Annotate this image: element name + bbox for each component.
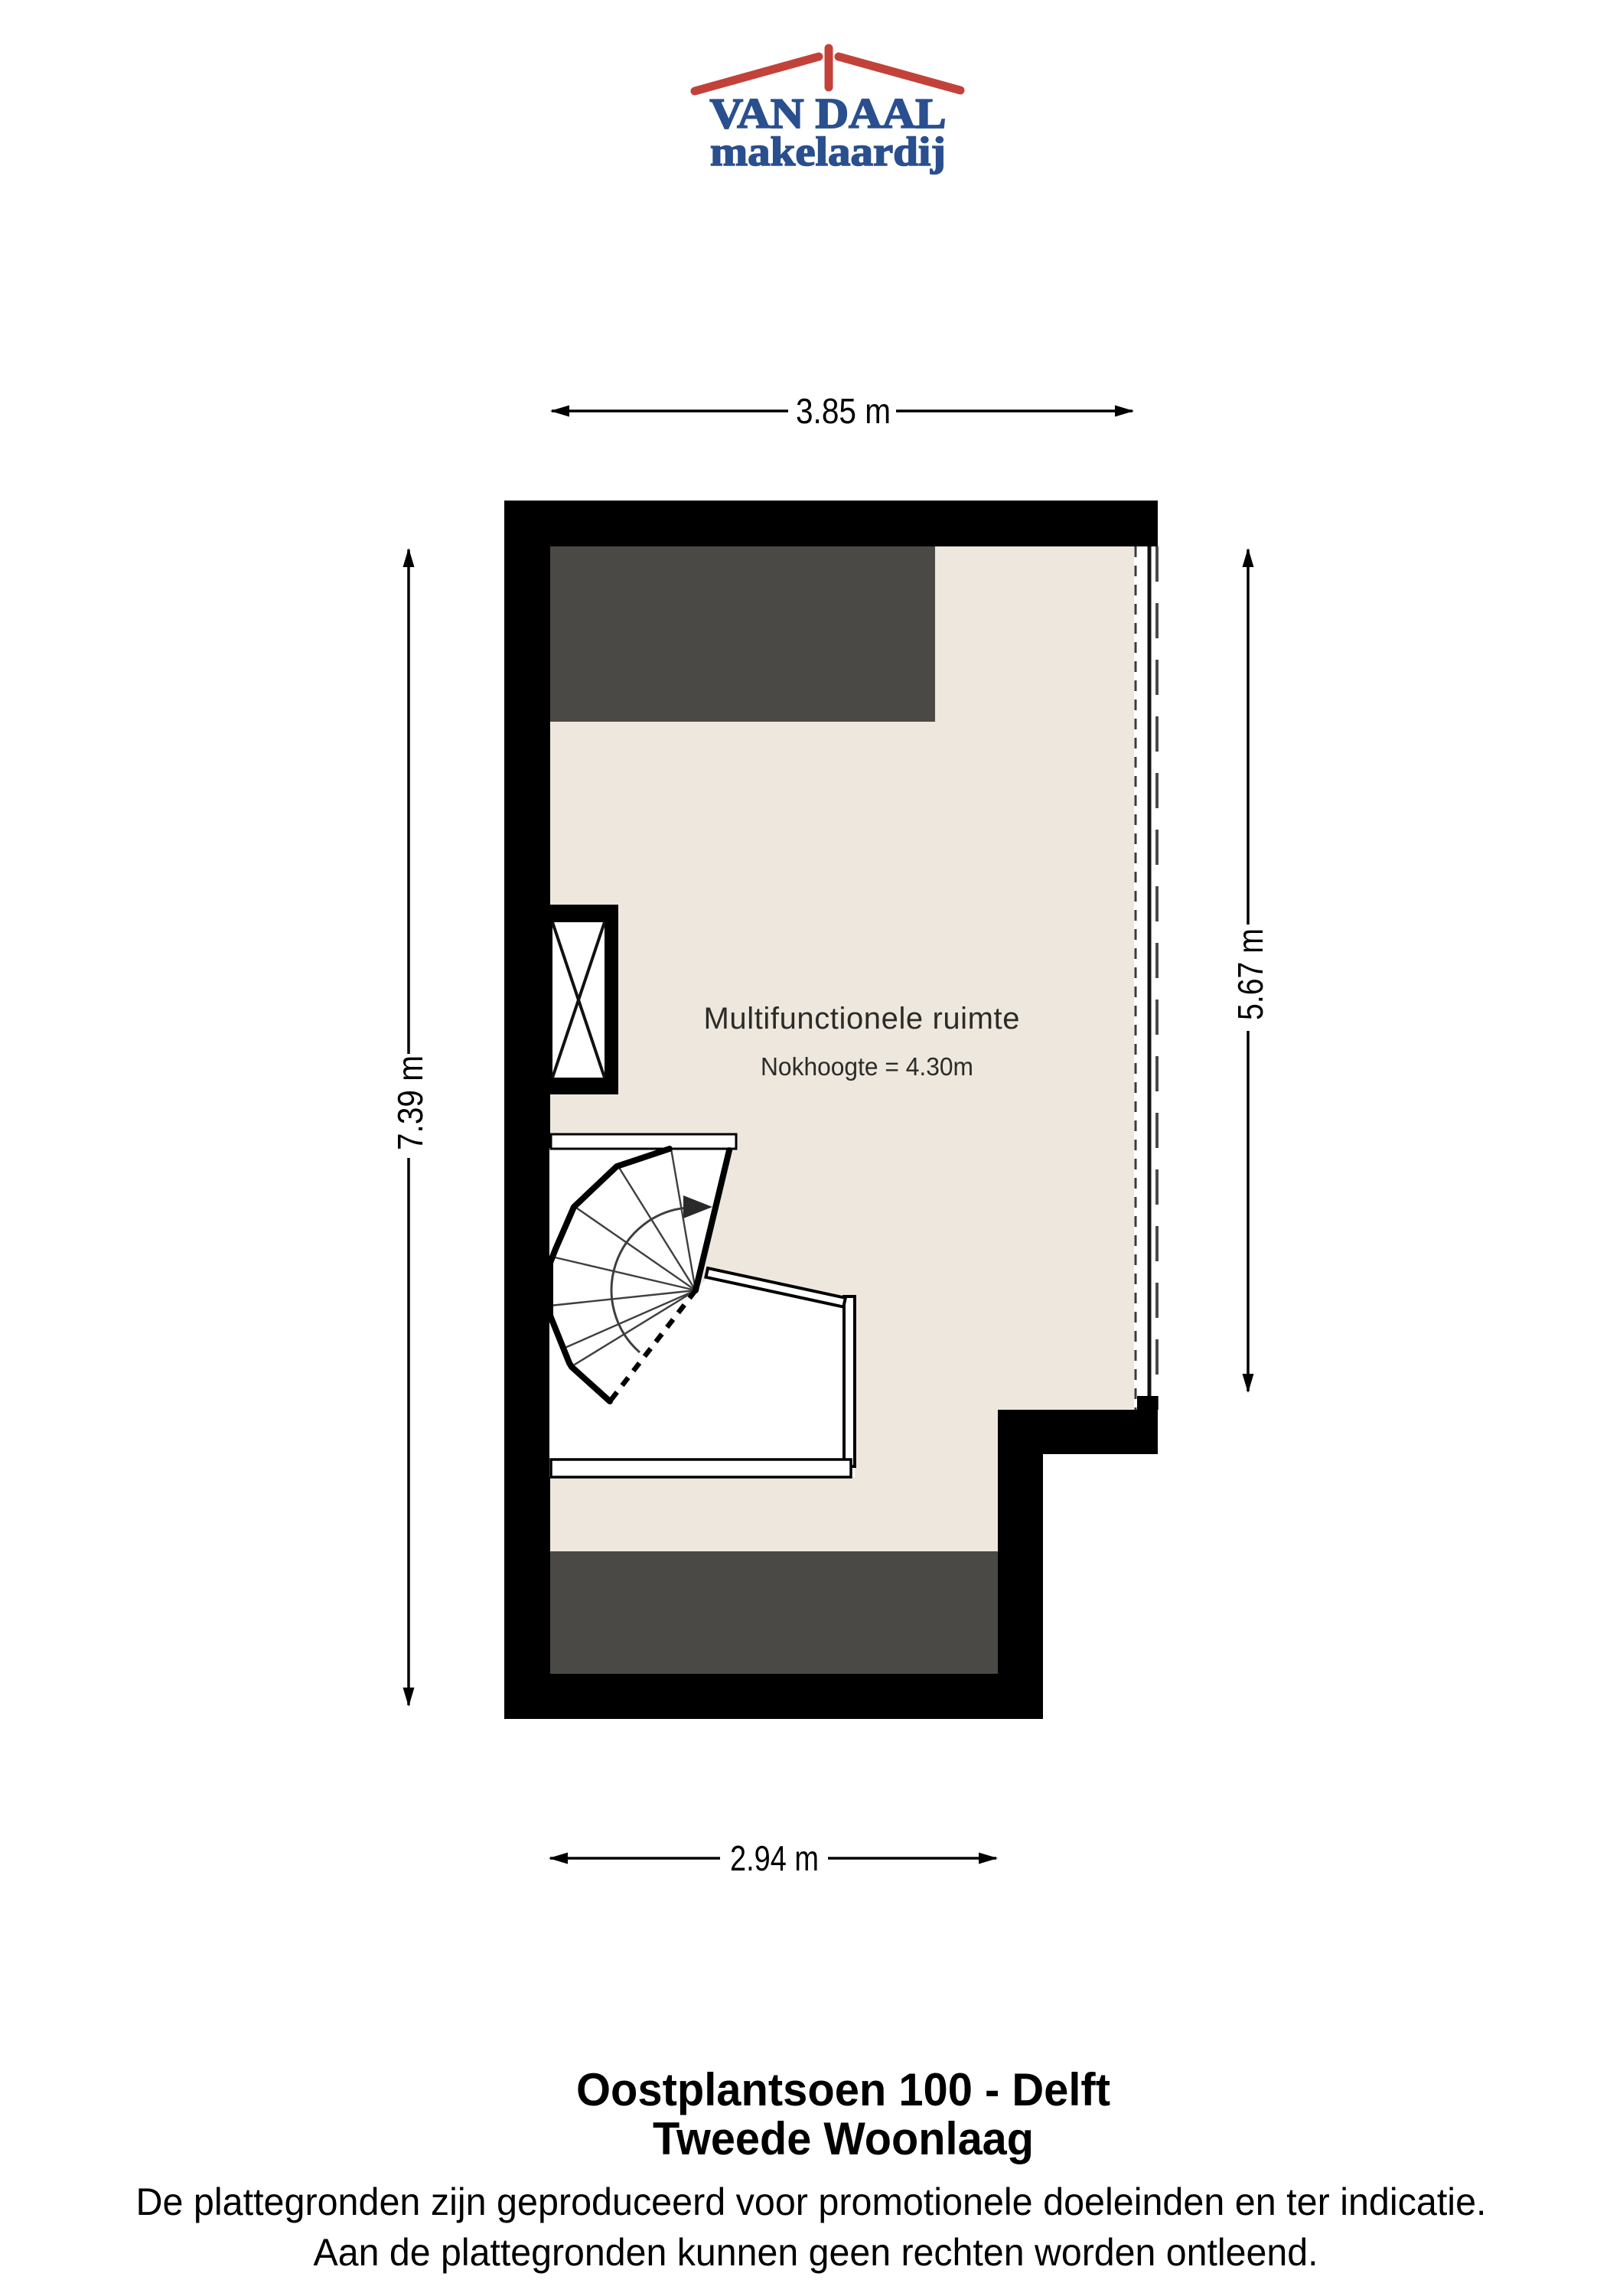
svg-text:2.94 m: 2.94 m bbox=[730, 1838, 819, 1878]
svg-text:De plattegronden zijn geproduc: De plattegronden zijn geproduceerd voor … bbox=[136, 2180, 1487, 2223]
svg-text:Nokhoogte = 4.30m: Nokhoogte = 4.30m bbox=[761, 1052, 973, 1081]
svg-text:Oostplantsoen 100 - Delft: Oostplantsoen 100 - Delft bbox=[576, 2064, 1110, 2115]
svg-text:Multifunctionele ruimte: Multifunctionele ruimte bbox=[704, 1002, 1020, 1035]
svg-text:7.39 m: 7.39 m bbox=[390, 1055, 430, 1150]
svg-text:makelaardij: makelaardij bbox=[710, 129, 946, 174]
svg-text:Tweede Woonlaag: Tweede Woonlaag bbox=[653, 2113, 1034, 2164]
svg-text:3.85 m: 3.85 m bbox=[796, 391, 891, 431]
svg-text:5.67 m: 5.67 m bbox=[1230, 928, 1270, 1020]
svg-text:Aan de plattegronden kunnen ge: Aan de plattegronden kunnen geen rechten… bbox=[314, 2231, 1318, 2274]
